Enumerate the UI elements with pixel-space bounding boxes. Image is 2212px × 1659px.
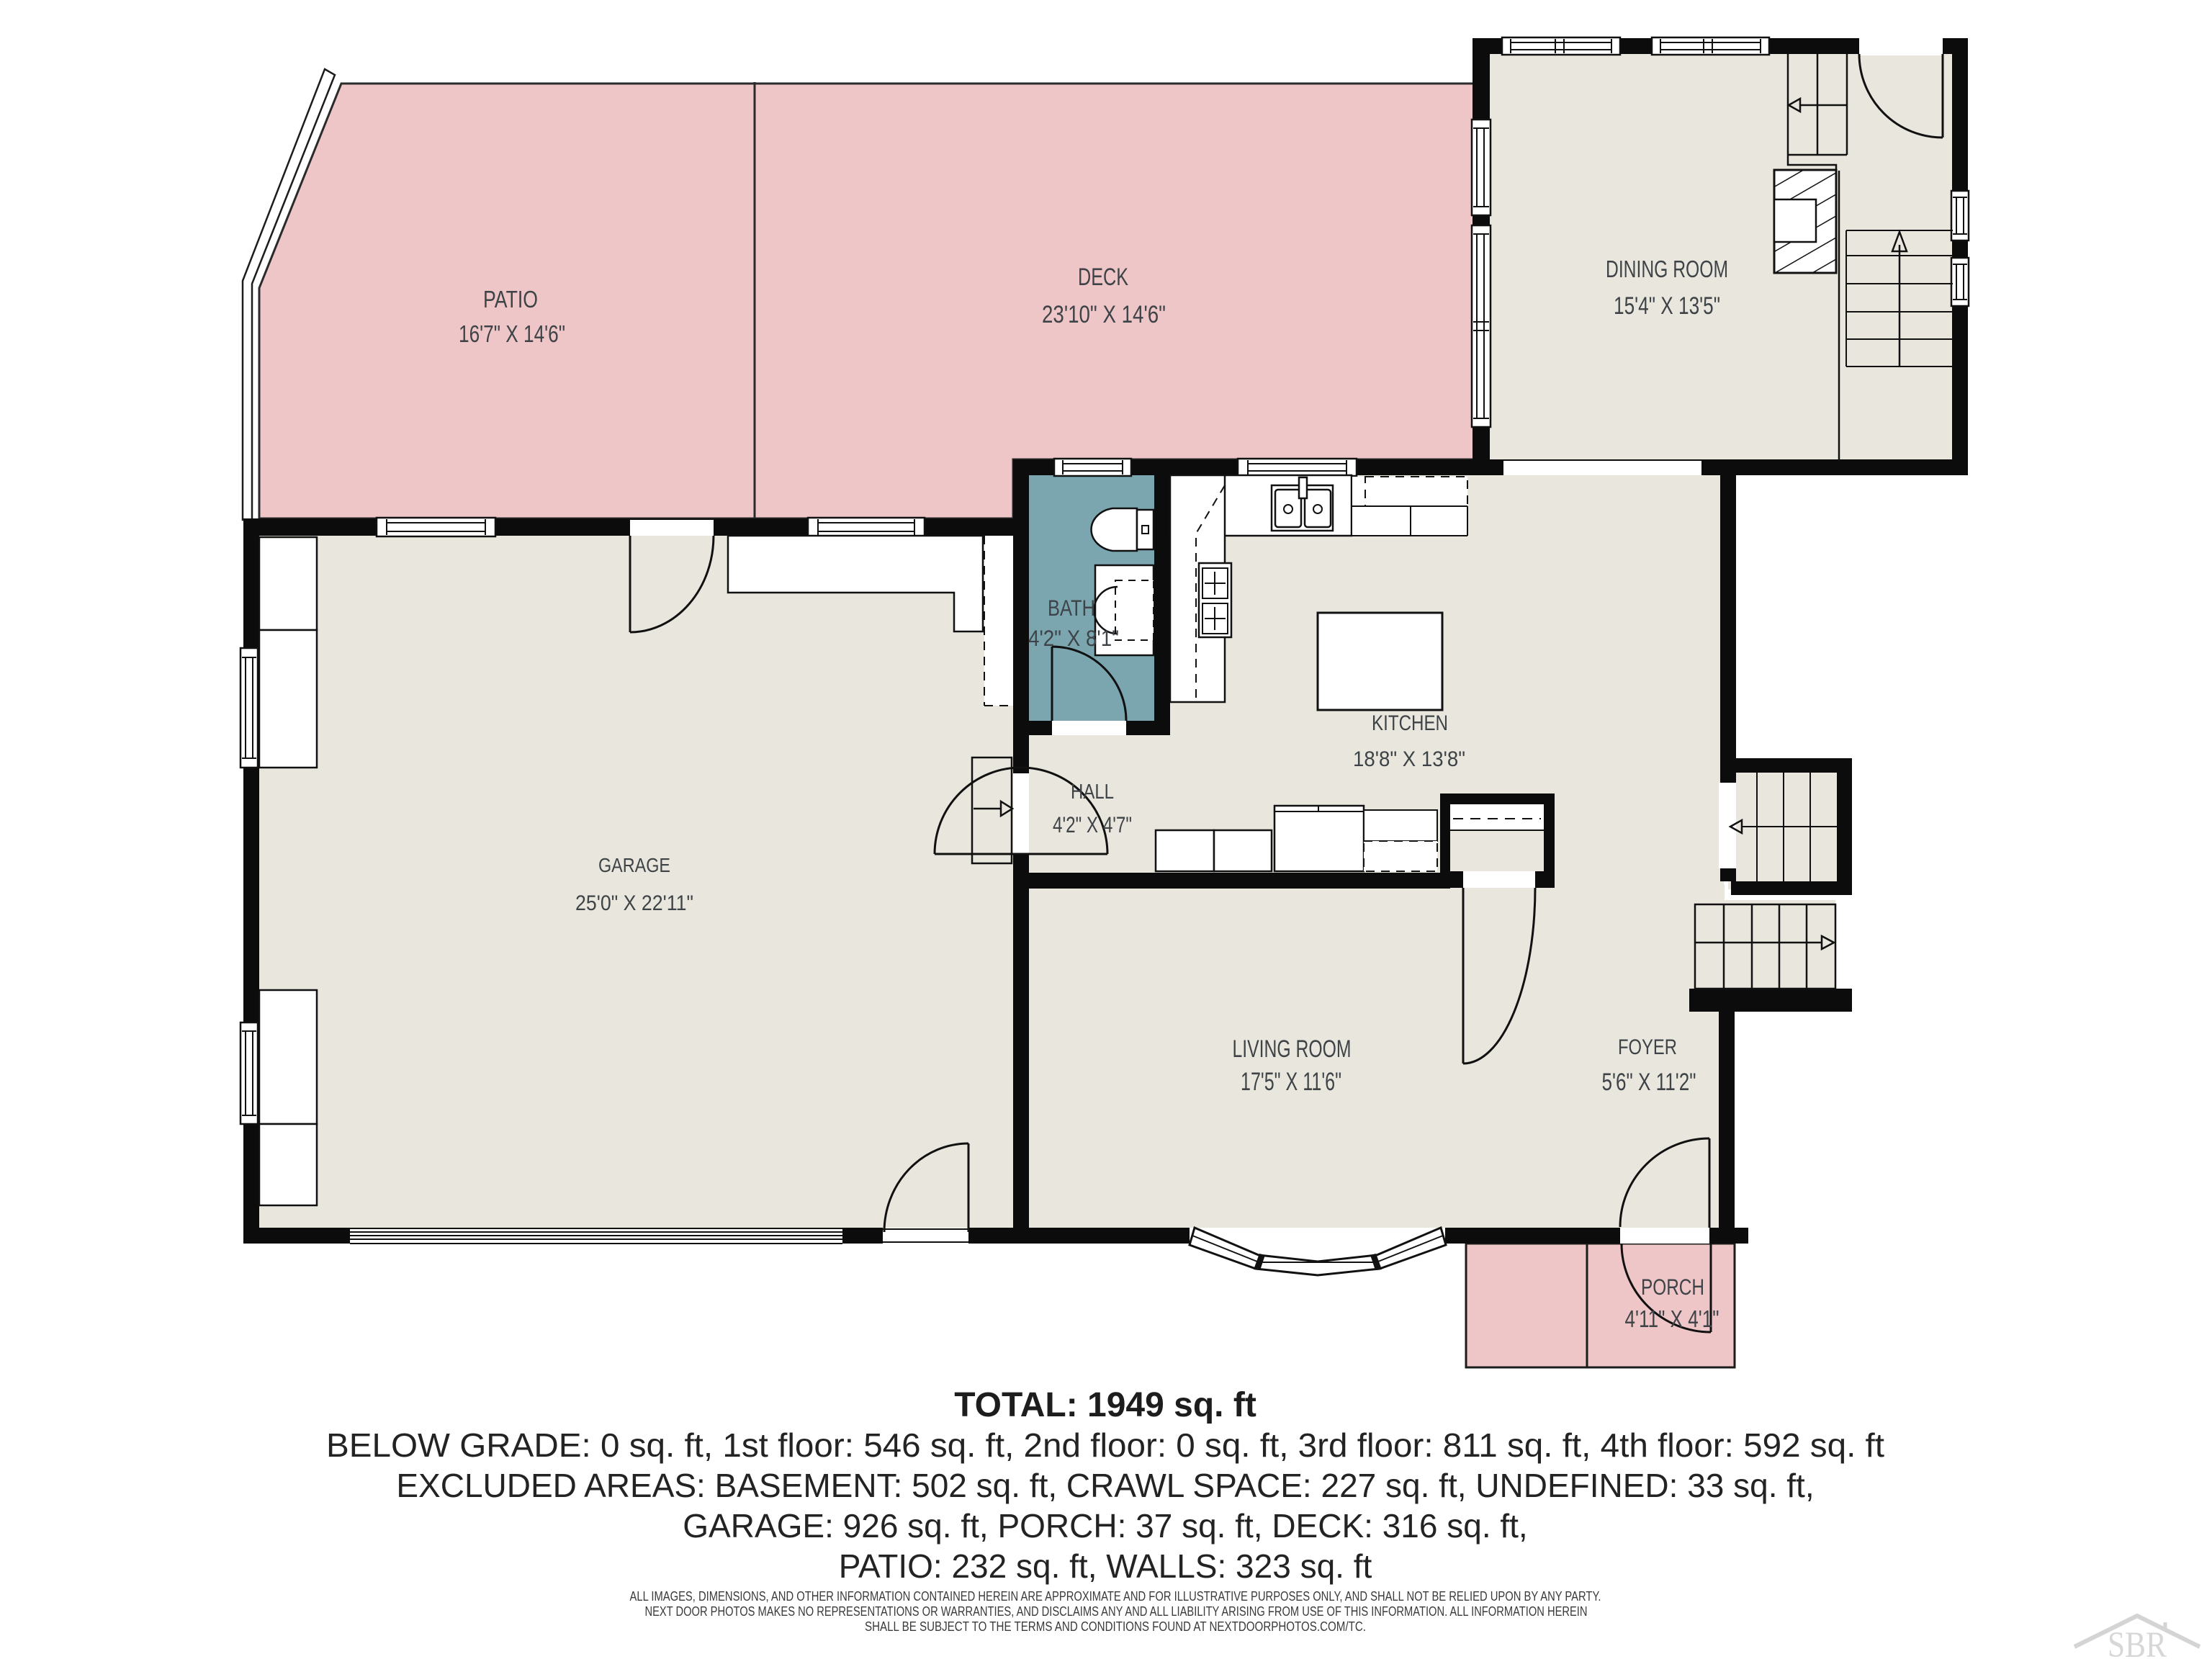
svg-text:TOTAL: 1949 sq. ft: TOTAL: 1949 sq. ft — [954, 1386, 1256, 1424]
svg-text:15'4" X 13'5": 15'4" X 13'5" — [1614, 292, 1720, 320]
svg-text:SBR: SBR — [2108, 1625, 2167, 1659]
svg-text:16'7" X 14'6": 16'7" X 14'6" — [459, 320, 565, 347]
svg-text:17'5" X 11'6": 17'5" X 11'6" — [1241, 1067, 1341, 1096]
svg-text:LIVING ROOM: LIVING ROOM — [1233, 1035, 1352, 1063]
svg-text:GARAGE: 926 sq. ft, PORCH: 37: GARAGE: 926 sq. ft, PORCH: 37 sq. ft, DE… — [683, 1507, 1527, 1545]
svg-text:18'8" X 13'8": 18'8" X 13'8" — [1353, 747, 1465, 771]
svg-text:5'6" X 11'2": 5'6" X 11'2" — [1602, 1069, 1696, 1096]
svg-text:4'11" X 4'1": 4'11" X 4'1" — [1625, 1305, 1719, 1332]
svg-text:SHALL BE SUBJECT TO THE TERMS: SHALL BE SUBJECT TO THE TERMS AND CONDIT… — [865, 1619, 1366, 1634]
svg-text:23'10" X 14'6": 23'10" X 14'6" — [1042, 301, 1166, 328]
svg-text:25'0" X 22'11": 25'0" X 22'11" — [575, 891, 693, 915]
svg-text:GARAGE: GARAGE — [598, 854, 670, 876]
svg-text:ALL IMAGES, DIMENSIONS, AND OT: ALL IMAGES, DIMENSIONS, AND OTHER INFORM… — [630, 1589, 1601, 1604]
svg-text:4'2" X 8'1": 4'2" X 8'1" — [1028, 625, 1119, 651]
svg-text:BELOW GRADE: 0 sq. ft, 1st flo: BELOW GRADE: 0 sq. ft, 1st floor: 546 sq… — [326, 1426, 1884, 1464]
svg-text:BATH: BATH — [1048, 595, 1095, 621]
svg-text:4'2" X 4'7": 4'2" X 4'7" — [1053, 811, 1132, 837]
svg-text:PORCH: PORCH — [1641, 1274, 1704, 1300]
svg-text:PATIO: PATIO — [483, 286, 538, 313]
svg-text:NEXT DOOR PHOTOS MAKES NO REPR: NEXT DOOR PHOTOS MAKES NO REPRESENTATION… — [645, 1604, 1588, 1619]
svg-text:DECK: DECK — [1078, 264, 1128, 291]
svg-text:HALL: HALL — [1071, 781, 1114, 804]
svg-text:PATIO: 232 sq. ft, WALLS: 323: PATIO: 232 sq. ft, WALLS: 323 sq. ft — [839, 1547, 1372, 1585]
svg-text:FOYER: FOYER — [1618, 1035, 1677, 1059]
svg-text:DINING ROOM: DINING ROOM — [1606, 256, 1728, 282]
svg-text:KITCHEN: KITCHEN — [1372, 711, 1448, 735]
svg-text:EXCLUDED AREAS: BASEMENT: 502: EXCLUDED AREAS: BASEMENT: 502 sq. ft, CR… — [396, 1467, 1814, 1504]
